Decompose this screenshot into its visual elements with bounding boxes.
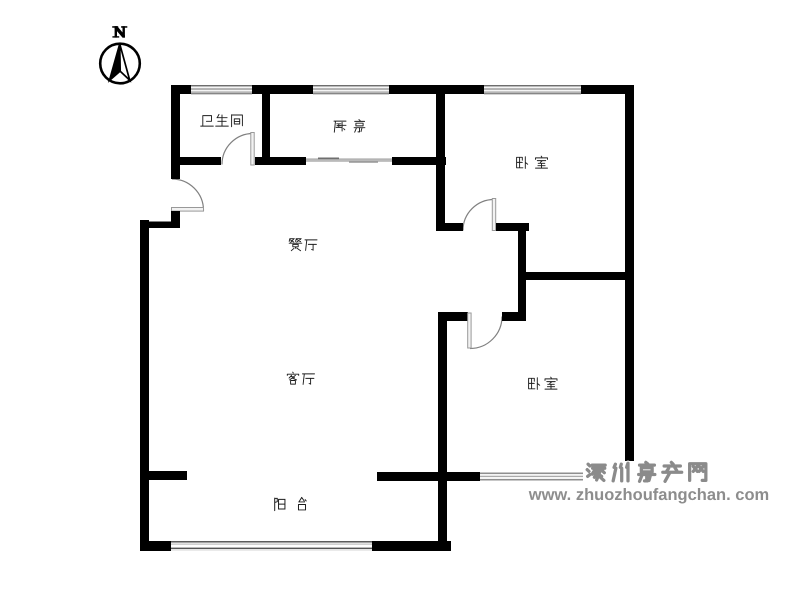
svg-text:www. zhuozhoufangchan. com: www. zhuozhoufangchan. com [528, 486, 769, 504]
